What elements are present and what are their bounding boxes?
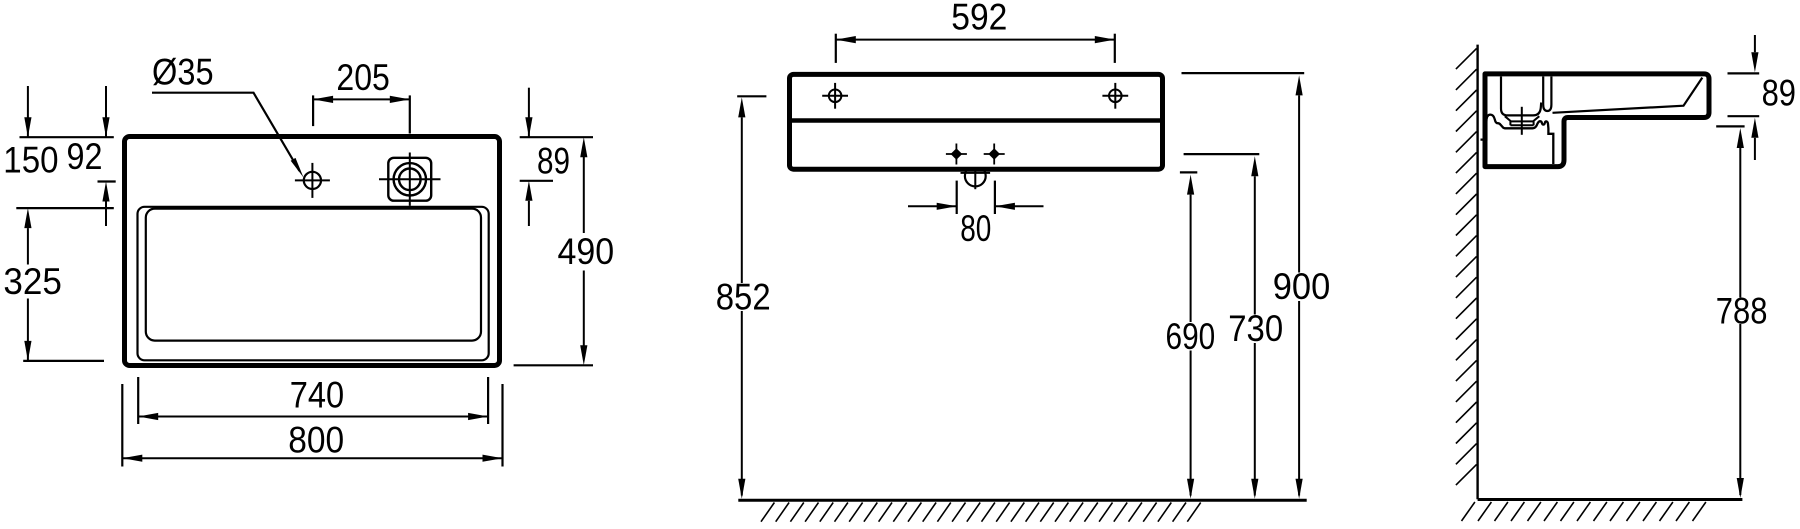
svg-text:900: 900 <box>1273 266 1331 307</box>
svg-text:800: 800 <box>288 420 344 461</box>
svg-text:852: 852 <box>716 277 771 318</box>
svg-text:Ø35: Ø35 <box>152 52 214 93</box>
svg-text:788: 788 <box>1716 290 1768 331</box>
svg-text:80: 80 <box>960 208 991 249</box>
svg-text:89: 89 <box>1762 73 1796 114</box>
svg-text:740: 740 <box>290 375 344 416</box>
svg-text:730: 730 <box>1228 308 1283 349</box>
svg-text:690: 690 <box>1166 316 1216 357</box>
svg-text:592: 592 <box>951 0 1007 38</box>
svg-text:490: 490 <box>557 231 614 272</box>
svg-text:325: 325 <box>3 261 62 302</box>
svg-text:89: 89 <box>537 140 570 181</box>
svg-text:205: 205 <box>336 57 389 98</box>
svg-text:92: 92 <box>67 136 103 177</box>
svg-text:150: 150 <box>3 139 58 180</box>
